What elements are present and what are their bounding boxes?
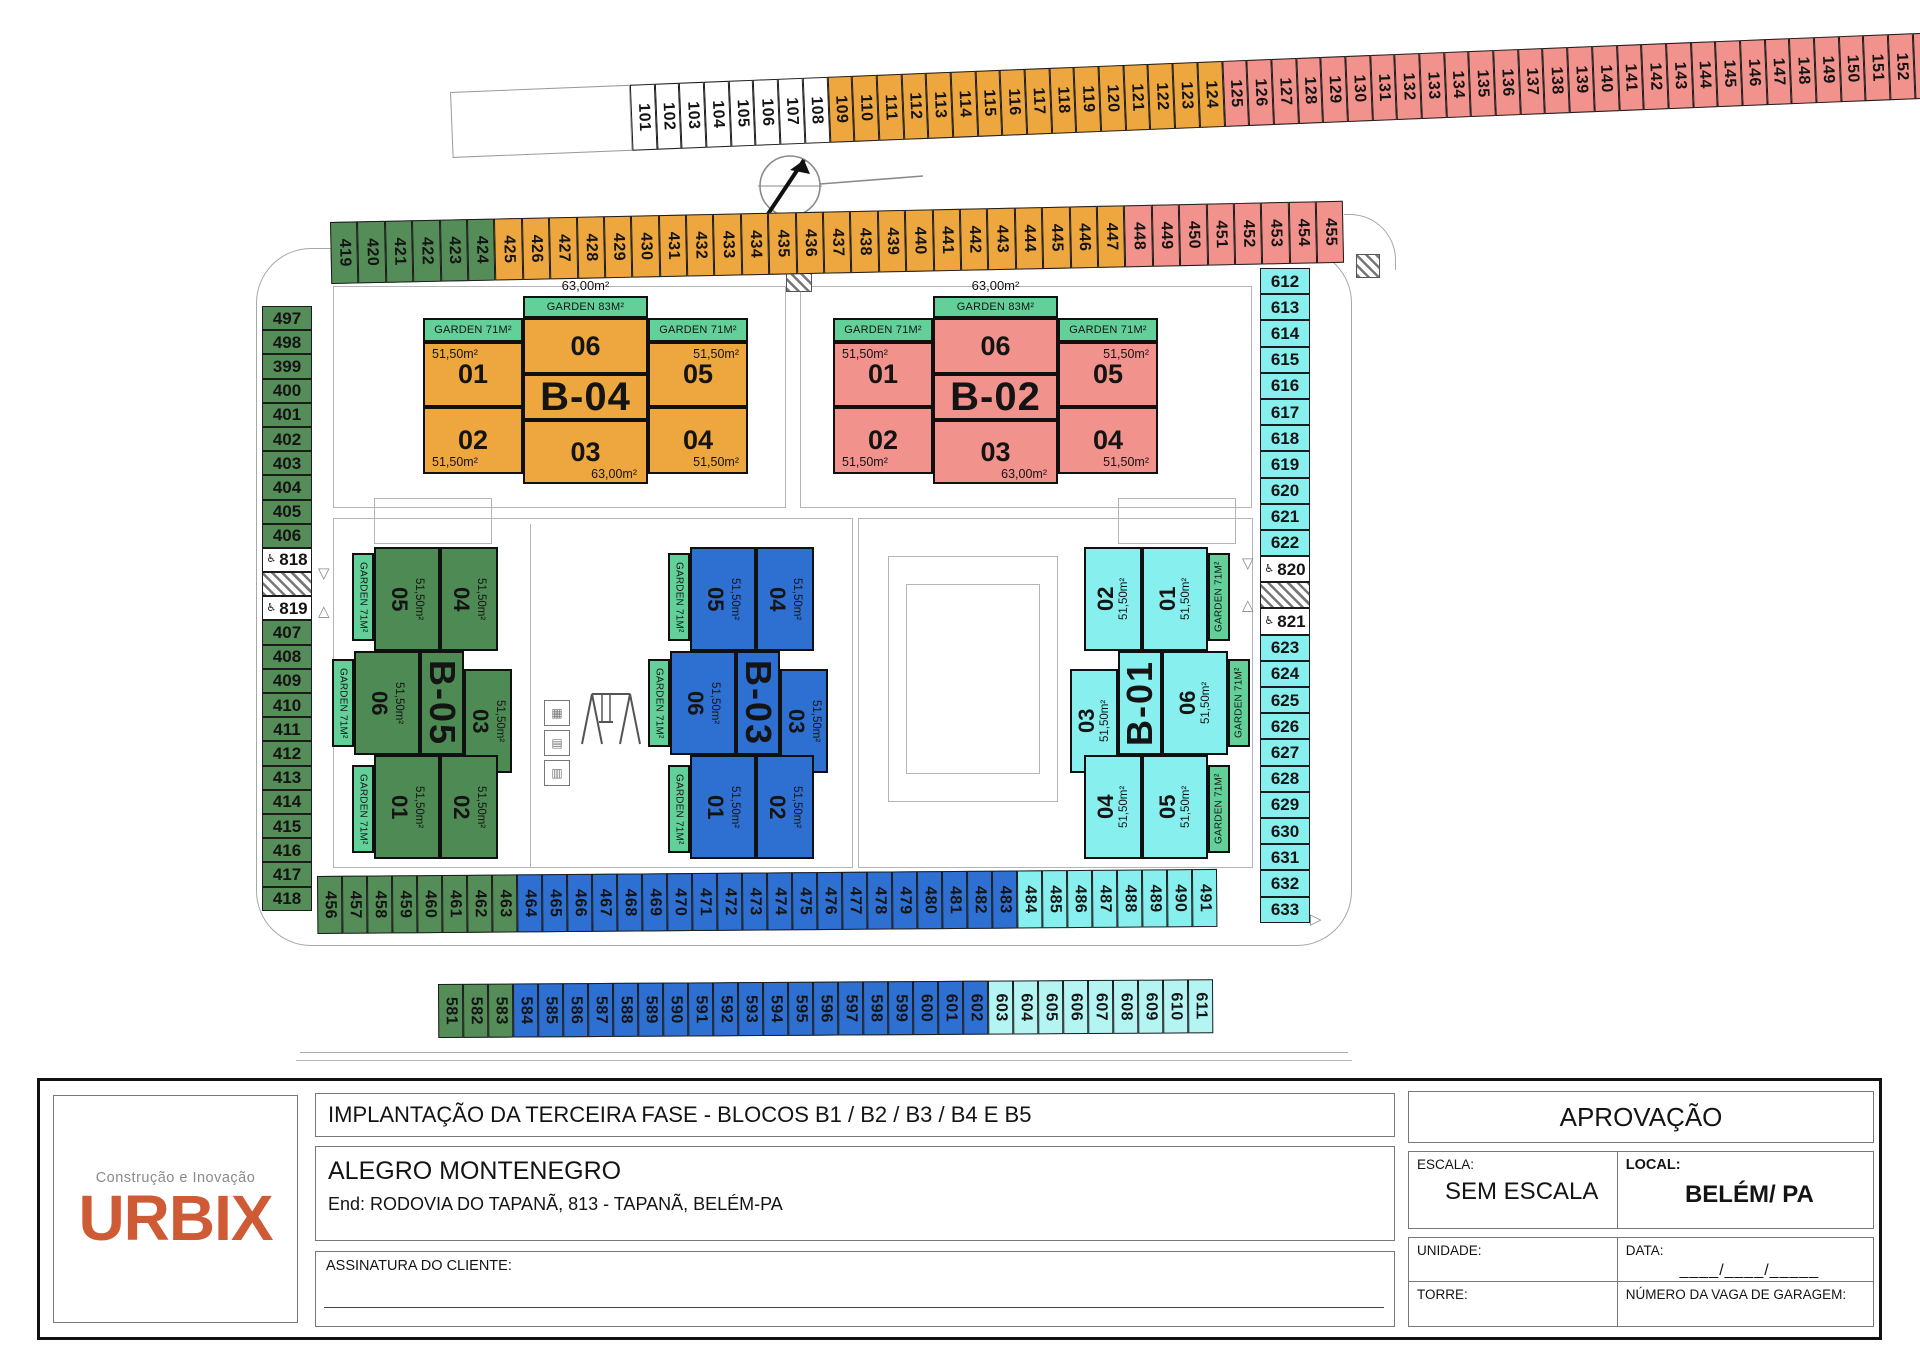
unit-number: 05 xyxy=(1093,359,1123,390)
equipment-icon: ▥ xyxy=(544,760,570,786)
unit-area: 51,50m² xyxy=(492,700,507,742)
parking-stall-number: 454 xyxy=(1295,218,1312,247)
garden-band: GARDEN 71M² xyxy=(352,765,374,853)
parking-stall-number: 430 xyxy=(637,232,654,261)
unit-01: 51,50m²01 xyxy=(374,755,440,859)
parking-stall: 405 xyxy=(262,500,312,524)
parking-stall-number: 117 xyxy=(1030,87,1047,115)
parking-stall-number: 144 xyxy=(1696,60,1713,89)
parking-stall: 607 xyxy=(1088,980,1113,1034)
garden-band: GARDEN 71M² xyxy=(423,318,523,342)
garden-band: GARDEN 71M² xyxy=(668,553,690,641)
parking-stall: 453 xyxy=(1261,202,1290,265)
parking-stall: 128 xyxy=(1296,57,1323,124)
parking-stall-number: 449 xyxy=(1158,221,1175,250)
parking-stall-number: 626 xyxy=(1271,718,1299,735)
parking-stall: 583 xyxy=(488,984,513,1038)
date-label: DATA: xyxy=(1626,1243,1664,1258)
parking-stall: 105 xyxy=(729,80,756,147)
parking-stall: 612 xyxy=(1260,268,1310,294)
garden-band: GARDEN 71M² xyxy=(1228,659,1250,747)
unit-area: 51,50m² xyxy=(707,682,722,724)
parking-stall: 615 xyxy=(1260,347,1310,373)
parking-stall: 465 xyxy=(542,874,567,932)
accessible-parking-icon: ♿ xyxy=(266,603,276,614)
parking-stall: 450 xyxy=(1179,204,1208,267)
parking-stall-number: 445 xyxy=(1048,224,1065,253)
parking-stall-number: 151 xyxy=(1868,53,1885,82)
parking-stall-number: 115 xyxy=(980,89,997,117)
parking-stall-number: 108 xyxy=(808,96,825,125)
parking-stall: 631 xyxy=(1260,844,1310,870)
scale-label: ESCALA: xyxy=(1417,1157,1474,1172)
parking-stall-number: 152 xyxy=(1893,52,1910,81)
parking-stall: 111 xyxy=(877,74,904,141)
parking-stall: 582 xyxy=(463,984,488,1038)
parking-stall: 447 xyxy=(1097,205,1126,268)
parking-stall: 479 xyxy=(892,871,917,929)
parking-stall: 481 xyxy=(942,871,967,929)
parking-stall: 151 xyxy=(1863,34,1890,101)
parking-stall-number: 119 xyxy=(1079,85,1096,113)
unit-number: 02 xyxy=(458,425,488,456)
parking-stall: 614 xyxy=(1260,320,1310,346)
parking-column-left: 497498399400401402403404405406♿818♿81940… xyxy=(262,306,312,911)
parking-stall: 424 xyxy=(467,219,496,282)
unit-area: 51,50m² xyxy=(842,347,888,361)
unit-number: 04 xyxy=(766,587,789,611)
parking-stall-number: 457 xyxy=(347,891,363,919)
parking-stall-number: 426 xyxy=(528,234,545,263)
parking-stall-number: 469 xyxy=(647,888,663,916)
unit-number: 06 xyxy=(980,331,1010,362)
parking-stall-number: 596 xyxy=(818,994,834,1022)
building-b-01: 0251,50m²0151,50m²0351,50m²0651,50m²0451… xyxy=(1070,547,1250,859)
parking-stall: 430 xyxy=(631,215,660,278)
unit-02: 51,50m²02 xyxy=(440,755,498,859)
parking-stall: 107 xyxy=(778,78,805,145)
parking-stall-number: 475 xyxy=(797,887,813,915)
parking-stall: 428 xyxy=(576,216,605,279)
top-area-label: 63,00m² xyxy=(972,278,1020,293)
garden-band: GARDEN 71M² xyxy=(668,765,690,853)
parking-stall-number: 448 xyxy=(1130,222,1147,251)
building-b-04: 51,50m²010651,50m²0551,50m²0263,00m²0351… xyxy=(423,296,748,486)
parking-stall: 628 xyxy=(1260,766,1310,792)
parking-stall: 427 xyxy=(549,217,578,280)
parking-stall-number: 415 xyxy=(273,818,301,835)
unit-area: 51,50m² xyxy=(391,682,406,724)
unit-area: 51,50m² xyxy=(789,578,804,620)
parking-stall: 592 xyxy=(713,982,738,1036)
parking-stall: 602 xyxy=(963,981,988,1035)
parking-stall-number: 497 xyxy=(273,310,301,327)
unit-area: 51,50m² xyxy=(1103,347,1149,361)
parking-stall: 490 xyxy=(1167,869,1192,927)
unit-02: 51,50m²02 xyxy=(756,755,814,859)
outer-bottom-line-2 xyxy=(296,1060,1352,1061)
parking-stall: 406 xyxy=(262,524,312,548)
parking-stall-number: 478 xyxy=(872,886,888,914)
parking-stall: 616 xyxy=(1260,373,1310,399)
parking-stall: 472 xyxy=(717,873,742,931)
accessible-parking-icon: ♿ xyxy=(1264,616,1274,627)
parking-stall: 102 xyxy=(655,83,682,150)
parking-stall-number: 588 xyxy=(618,996,634,1024)
unit-area: 63,00m² xyxy=(591,467,637,481)
parking-stall: 610 xyxy=(1163,979,1188,1033)
parking-stall: 617 xyxy=(1260,399,1310,425)
parking-stall-number: 401 xyxy=(273,406,301,423)
parking-stall: 400 xyxy=(262,379,312,403)
parking-stall-number: 472 xyxy=(722,888,738,916)
garden-band: GARDEN 71M² xyxy=(1058,318,1158,342)
unit-number: 01 xyxy=(388,795,411,819)
parking-stall-number: 593 xyxy=(743,995,759,1023)
parking-stall-number: 149 xyxy=(1819,55,1836,84)
parking-stall-number: 404 xyxy=(273,479,301,496)
parking-stall: 414 xyxy=(262,790,312,814)
parking-stall-number: 440 xyxy=(911,226,928,255)
unit-01: 51,50m²01 xyxy=(833,342,933,407)
equipment-icon: ▦ xyxy=(544,700,570,726)
unit-area: 51,50m² xyxy=(842,455,888,469)
parking-stall: 130 xyxy=(1345,55,1372,122)
parking-stall: 142 xyxy=(1641,43,1668,110)
parking-stall-number: 427 xyxy=(555,234,572,263)
parking-stall-number: 592 xyxy=(718,995,734,1023)
parking-stall: 489 xyxy=(1142,869,1167,927)
parking-stall-number: 111 xyxy=(882,94,899,121)
parking-stall: 601 xyxy=(938,981,963,1035)
parking-stall: 459 xyxy=(392,875,417,933)
unit-area: 51,50m² xyxy=(1098,700,1113,742)
parking-stall-number: 471 xyxy=(697,888,713,916)
parking-stall-number: 483 xyxy=(997,885,1013,913)
parking-stall-number: 617 xyxy=(1271,404,1299,421)
parking-stall-number: 122 xyxy=(1153,82,1170,111)
drawing-title: IMPLANTAÇÃO DA TERCEIRA FASE - BLOCOS B1… xyxy=(315,1093,1395,1137)
parking-stall: 133 xyxy=(1419,52,1446,119)
parking-stall: 451 xyxy=(1206,203,1235,266)
garden-band: GARDEN 71M² xyxy=(648,318,748,342)
parking-stall: ♿819 xyxy=(262,596,312,620)
parking-stall-number: 421 xyxy=(391,237,408,266)
signature-label: ASSINATURA DO CLIENTE: xyxy=(326,1258,512,1274)
building-b-02: 51,50m²010651,50m²0551,50m²0263,00m²0351… xyxy=(833,296,1158,486)
parking-stall: 488 xyxy=(1117,870,1142,928)
unit-area: 51,50m² xyxy=(693,347,739,361)
parking-stall-number: 455 xyxy=(1322,218,1339,247)
parking-stall: 596 xyxy=(813,982,838,1036)
unit-number: 06 xyxy=(570,331,600,362)
parking-stall: 460 xyxy=(417,875,442,933)
parking-stall-number: 409 xyxy=(273,672,301,689)
parking-stall-number: 621 xyxy=(1271,508,1299,525)
unit-number: 03 xyxy=(469,709,492,733)
garden-band: GARDEN 83M² xyxy=(933,296,1058,318)
parking-stall-number: 424 xyxy=(473,236,490,265)
parking-stall: 116 xyxy=(1000,69,1027,136)
parking-stall: 630 xyxy=(1260,818,1310,844)
parking-stall-number: 441 xyxy=(939,226,956,255)
parking-stall: 464 xyxy=(517,874,542,932)
parking-stall-number: 451 xyxy=(1212,220,1229,249)
parking-stall-number: 135 xyxy=(1474,69,1491,98)
unit-04: 0451,50m² xyxy=(1084,755,1142,859)
parking-stall: 434 xyxy=(741,213,770,276)
parking-stall-number: 595 xyxy=(793,995,809,1023)
parking-stall: 485 xyxy=(1042,870,1067,928)
signature-line[interactable] xyxy=(324,1307,1384,1308)
parking-stall: ♿821 xyxy=(1260,608,1310,634)
parking-stall: 146 xyxy=(1740,39,1767,106)
parking-stall-number: 118 xyxy=(1054,86,1071,114)
parking-stall: 611 xyxy=(1188,979,1213,1033)
parking-stall-number: 591 xyxy=(693,995,709,1023)
unit-area: 51,50m² xyxy=(1117,786,1132,828)
unit-area: 51,50m² xyxy=(789,786,804,828)
parking-stall: 587 xyxy=(588,983,613,1037)
parking-stall: 594 xyxy=(763,982,788,1036)
parking-stall: 603 xyxy=(988,980,1013,1034)
parking-stall: 425 xyxy=(494,218,523,281)
parking-stall: 422 xyxy=(412,220,441,283)
building-label: B-03 xyxy=(736,651,780,755)
parking-stall-number: 425 xyxy=(500,235,517,264)
no-parking-hatch xyxy=(1260,582,1310,608)
parking-stall-number: 632 xyxy=(1271,875,1299,892)
parking-stall-number: 447 xyxy=(1103,222,1120,251)
unit-number: 02 xyxy=(450,795,473,819)
parking-stall-number: 407 xyxy=(273,624,301,641)
parking-stall: 126 xyxy=(1247,59,1274,126)
parking-stall-number: 140 xyxy=(1597,64,1614,93)
parking-stall-number: 487 xyxy=(1097,885,1113,913)
parking-stall: 437 xyxy=(823,211,852,274)
parking-stall-number: 106 xyxy=(758,98,775,127)
parking-stall: 138 xyxy=(1543,47,1570,114)
parking-stall-number: 630 xyxy=(1271,823,1299,840)
parking-stall-number: 138 xyxy=(1548,66,1565,95)
parking-column-right: 612613614615616617618619620621622♿820♿82… xyxy=(1260,268,1310,923)
parking-stall: 137 xyxy=(1518,48,1545,115)
parking-stall: 613 xyxy=(1260,294,1310,320)
parking-stall: 627 xyxy=(1260,739,1310,765)
parking-row-b1: 4564574584594604614624634644654664674684… xyxy=(317,869,1217,934)
parking-stall: 442 xyxy=(960,208,989,271)
parking-stall-number: 479 xyxy=(897,886,913,914)
parking-stall: 145 xyxy=(1715,40,1742,107)
parking-stall-number: 604 xyxy=(1018,993,1034,1021)
parking-stall: 621 xyxy=(1260,504,1310,530)
unit-01: 51,50m²01 xyxy=(423,342,523,407)
parking-stall-number: 633 xyxy=(1271,901,1299,918)
unit-number: 02 xyxy=(1094,587,1117,611)
parking-stall-number: 467 xyxy=(597,889,613,917)
parking-stall: 452 xyxy=(1234,202,1263,265)
parking-stall-number: 603 xyxy=(993,993,1009,1021)
parking-stall: 109 xyxy=(827,76,854,143)
garden-band: GARDEN 71M² xyxy=(332,659,354,747)
parking-stall-number: 439 xyxy=(884,227,901,256)
parking-stall: 622 xyxy=(1260,530,1310,556)
parking-stall: 608 xyxy=(1113,980,1138,1034)
unit-number: 04 xyxy=(450,587,473,611)
parking-stall: 589 xyxy=(638,983,663,1037)
parking-stall-number: 107 xyxy=(783,97,800,126)
parking-stall: 491 xyxy=(1192,869,1217,927)
parking-stall: 131 xyxy=(1370,54,1397,121)
parking-stall-number: 625 xyxy=(1271,692,1299,709)
parking-stall-number: 462 xyxy=(472,890,488,918)
parking-stall-number: 150 xyxy=(1844,54,1861,83)
unit-label: UNIDADE: xyxy=(1417,1243,1482,1258)
parking-stall: 125 xyxy=(1222,60,1249,127)
parking-stall: 497 xyxy=(262,306,312,330)
parking-stall-number: 129 xyxy=(1326,75,1343,104)
parking-stall-number: 586 xyxy=(568,996,584,1024)
flow-marker-down: ▽ xyxy=(318,566,330,581)
unit-cell[interactable]: UNIDADE: xyxy=(1409,1238,1618,1282)
parking-stall: 101 xyxy=(630,84,657,151)
parking-stall: 598 xyxy=(863,981,888,1035)
parking-stall: 604 xyxy=(1013,980,1038,1034)
unit-05: 51,50m²05 xyxy=(690,547,756,651)
parking-stall-number: 432 xyxy=(692,231,709,260)
parking-stall-number: 141 xyxy=(1622,63,1639,92)
parking-stall-number: 423 xyxy=(446,236,463,265)
parking-stall: 410 xyxy=(262,693,312,717)
parking-stall-number: 599 xyxy=(893,994,909,1022)
parking-stall: 141 xyxy=(1617,44,1644,111)
garden-band: GARDEN 71M² xyxy=(1208,553,1230,641)
unit-area: 51,50m² xyxy=(693,455,739,469)
parking-stall: 106 xyxy=(753,79,780,146)
unit-number: 05 xyxy=(388,587,411,611)
parking-stall: 454 xyxy=(1288,201,1317,264)
parking-stall-number: 109 xyxy=(832,95,849,124)
parking-stall: 498 xyxy=(262,330,312,354)
parking-stall-number: 615 xyxy=(1271,351,1299,368)
parking-stall: 480 xyxy=(917,871,942,929)
parking-stall-number: 112 xyxy=(906,92,923,120)
parking-stall-number: 433 xyxy=(719,230,736,259)
unit-area: 51,50m² xyxy=(432,455,478,469)
parking-stall-number: 609 xyxy=(1143,992,1159,1020)
project-name: ALEGRO MONTENEGRO xyxy=(328,1157,1394,1186)
flow-marker-up: △ xyxy=(318,604,330,619)
local-value: BELÉM/ PA xyxy=(1626,1181,1873,1209)
parking-stall-number: 444 xyxy=(1021,224,1038,253)
parking-stall-number: 622 xyxy=(1271,534,1299,551)
parking-stall: 423 xyxy=(440,219,469,282)
parking-stall-number: 123 xyxy=(1178,81,1195,110)
garden-band: GARDEN 71M² xyxy=(648,659,670,747)
parking-stall-number: 137 xyxy=(1523,67,1540,96)
parking-stall-number: 442 xyxy=(966,225,983,254)
parking-stall: 461 xyxy=(442,875,467,933)
parking-stall: 471 xyxy=(692,873,717,931)
parking-stall: 629 xyxy=(1260,792,1310,818)
parking-stall-number: 103 xyxy=(684,101,701,130)
unit-area: 51,50m² xyxy=(727,786,742,828)
parking-stall: 590 xyxy=(663,982,688,1036)
unit-number: 02 xyxy=(766,795,789,819)
parking-stall-number: 121 xyxy=(1128,83,1145,112)
parking-stall-number: 631 xyxy=(1271,849,1299,866)
parking-row-top: 1011021031041051061071081091101111121131… xyxy=(450,30,1920,158)
parking-stall-number: 584 xyxy=(518,996,534,1024)
parking-stall: 585 xyxy=(538,983,563,1037)
unit-number: 01 xyxy=(868,359,898,390)
unit-03: 63,00m²03 xyxy=(933,420,1058,484)
unit-05: 51,50m²05 xyxy=(374,547,440,651)
unit-06: 0651,50m² xyxy=(1162,651,1228,755)
parking-stall-number: 124 xyxy=(1202,80,1219,109)
parking-stall: 487 xyxy=(1092,870,1117,928)
parking-stall-number: 412 xyxy=(273,745,301,762)
parking-stall: 148 xyxy=(1789,37,1816,104)
unit-number: 06 xyxy=(1176,691,1199,715)
garage-cell[interactable]: NÚMERO DA VAGA DE GARAGEM: xyxy=(1618,1282,1873,1326)
parking-stall: 150 xyxy=(1839,35,1866,102)
accessible-parking-icon: ♿ xyxy=(266,554,276,565)
unit-number: 06 xyxy=(684,691,707,715)
parking-stall-number: 408 xyxy=(273,648,301,665)
tower-label: TORRE: xyxy=(1417,1287,1468,1302)
top-area-label: 63,00m² xyxy=(562,278,610,293)
parking-stall-number: 620 xyxy=(1271,482,1299,499)
parking-stall: 144 xyxy=(1691,41,1718,108)
parking-stall-number: 623 xyxy=(1271,639,1299,656)
parking-stall-number: 400 xyxy=(273,382,301,399)
parking-stall: 420 xyxy=(357,221,386,284)
parking-stall: 624 xyxy=(1260,661,1310,687)
parking-stall: 114 xyxy=(951,71,978,138)
unit-06: 51,50m²06 xyxy=(670,651,736,755)
unit-area: 51,50m² xyxy=(473,578,488,620)
parking-stall: 599 xyxy=(888,981,913,1035)
parking-stall: 399 xyxy=(262,354,312,378)
parking-stall-number: 114 xyxy=(956,90,973,118)
parking-stall: 486 xyxy=(1067,870,1092,928)
parking-stall-number: 470 xyxy=(672,888,688,916)
parking-stall: 632 xyxy=(1260,870,1310,896)
parking-stall-number: 490 xyxy=(1172,884,1188,912)
parking-stall-number: 582 xyxy=(468,997,484,1025)
unit-number: 01 xyxy=(1156,587,1179,611)
parking-stall-number: 134 xyxy=(1449,70,1466,99)
unit-number: 05 xyxy=(683,359,713,390)
outer-bottom-line xyxy=(300,1052,1348,1053)
flow-marker-up: △ xyxy=(1242,598,1254,613)
parking-stall: 482 xyxy=(967,871,992,929)
approval-title: APROVAÇÃO xyxy=(1408,1091,1874,1143)
parking-stall-number: 611 xyxy=(1193,993,1209,1020)
date-cell[interactable]: DATA: ____/____/_____ xyxy=(1618,1238,1873,1282)
parking-stall: 605 xyxy=(1038,980,1063,1034)
tower-cell[interactable]: TORRE: xyxy=(1409,1282,1618,1326)
unit-area: 51,50m² xyxy=(1103,455,1149,469)
site-plan-sheet: 1011021031041051061071081091101111121131… xyxy=(0,0,1920,1358)
stair-core-right xyxy=(1118,498,1236,544)
unit-area: 51,50m² xyxy=(1179,786,1194,828)
garden-band: GARDEN 71M² xyxy=(833,318,933,342)
playground-icon xyxy=(580,688,642,746)
unit-04: 51,50m²04 xyxy=(1058,407,1158,474)
parking-stall-number: 411 xyxy=(273,721,300,738)
